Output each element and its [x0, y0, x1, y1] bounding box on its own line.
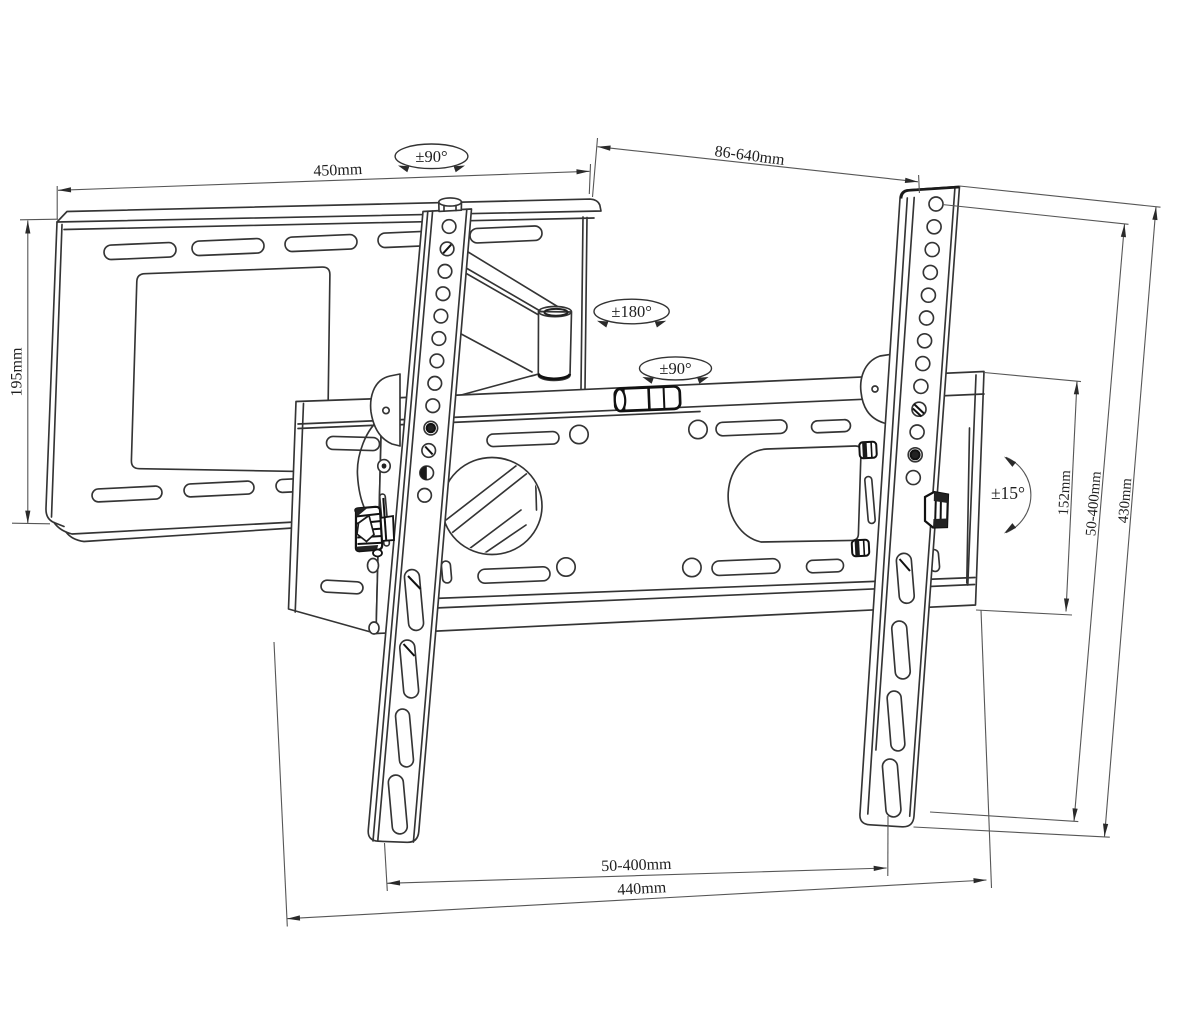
svg-text:450mm: 450mm — [313, 161, 363, 180]
svg-text:±15°: ±15° — [991, 483, 1025, 503]
svg-text:440mm: 440mm — [617, 879, 667, 899]
svg-text:±90°: ±90° — [659, 359, 691, 378]
svg-text:152mm: 152mm — [1056, 469, 1074, 515]
svg-text:195mm: 195mm — [9, 347, 26, 396]
svg-text:50-400mm: 50-400mm — [601, 856, 672, 875]
svg-text:±180°: ±180° — [611, 302, 651, 321]
svg-text:±90°: ±90° — [415, 147, 447, 166]
